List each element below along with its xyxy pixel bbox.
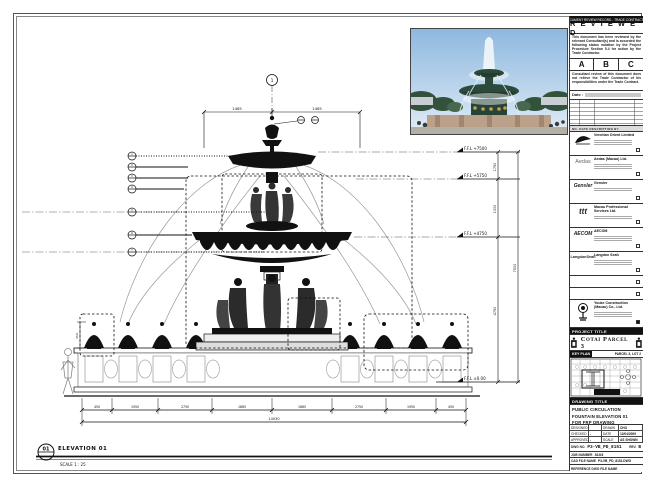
top-dimension	[202, 108, 362, 148]
rev-value: B	[638, 445, 641, 450]
photo-pavement	[411, 127, 567, 134]
consultant-address	[594, 140, 641, 145]
dim-lamp: 450	[75, 333, 79, 339]
reference-dwg-row: REFERENCE DWG FILE NAME	[570, 465, 643, 472]
contractor-checkbox[interactable]	[636, 320, 640, 324]
project-title-panel: Cotai Parcel 3	[570, 335, 643, 351]
photo-basin	[427, 115, 551, 127]
consultant-name: AECOM	[594, 230, 641, 234]
job-number-value: 3103	[594, 452, 603, 457]
consultant-address	[594, 216, 641, 219]
fountain-photo-scene	[411, 29, 567, 134]
job-number-label: JOB NUMBER	[571, 453, 592, 457]
bottom-dimensions: 4501950 27501865 18652750 1950450 14030	[80, 398, 468, 426]
consultant-checkbox[interactable]	[636, 196, 640, 200]
svg-text:14030: 14030	[268, 417, 279, 421]
stamp-date-field[interactable]	[585, 93, 641, 97]
consultant-empty-1	[570, 276, 643, 288]
drawing-title: PUBLIC CIRCULATION FOUNTAIN ELEVATION 01…	[570, 405, 643, 425]
venetian-logo-icon	[572, 134, 594, 153]
mps-logo: ttt	[579, 207, 587, 216]
svg-text:450: 450	[448, 405, 454, 409]
consultant-checkbox[interactable]	[636, 280, 640, 284]
cad-file-label: CAD FILE NAME	[571, 459, 596, 463]
drawing-title-band: DRAWING TITLE	[570, 398, 643, 405]
key-plan-band: KEY PLAN PARCEL 3, LOT 2	[570, 351, 643, 358]
key-plan-map: PARCEL 3 LOT 2	[570, 358, 642, 397]
drawing-title-line-1: PUBLIC CIRCULATION	[572, 407, 641, 412]
stamp-status-options: A B C	[570, 58, 643, 71]
level-1: F.F.L +7500	[464, 146, 487, 151]
svg-text:450: 450	[94, 405, 100, 409]
consultant-mps: ttt Macau Professional Services Ltd.	[570, 204, 643, 228]
stamp-option-b[interactable]: B	[594, 59, 618, 70]
dwg-no-value: P3-VB_PD_8151	[587, 445, 621, 450]
contractor-name: Youke Construction (Macau) Co., Ltd.	[594, 302, 641, 310]
contractor-logo-icon	[572, 302, 594, 325]
dim-top-right: 1465	[312, 106, 322, 111]
svg-text:1865: 1865	[298, 405, 306, 409]
consultant-venetian: Venetian Orient Limited	[570, 132, 643, 156]
contractor-address	[594, 312, 641, 317]
level-3: F.F.L +4750	[464, 231, 487, 236]
consultant-langdonseah: LangdonSeah Langdon Seah	[570, 252, 643, 276]
rev-label: REV.	[629, 445, 636, 449]
scale-figure	[61, 349, 75, 395]
consultant-address	[594, 164, 641, 169]
svg-text:7500: 7500	[513, 264, 517, 273]
consultant-name: Venetian Orient Limited	[594, 134, 641, 138]
contractor-card: Youke Construction (Macau) Co., Ltd.	[570, 300, 643, 328]
svg-text:1000: 1000	[493, 205, 497, 214]
svg-text:1950: 1950	[131, 405, 139, 409]
cad-file-value: P3-VB_PD_8151.DWG	[598, 459, 631, 463]
consultant-name: Macau Professional Services Ltd.	[594, 206, 641, 214]
svg-text:2750: 2750	[355, 405, 363, 409]
consultant-checkbox[interactable]	[636, 172, 640, 176]
dwg-no-label: DWG NO.	[571, 445, 585, 449]
stamp-date-label: Date :	[572, 92, 583, 97]
drawing-sheet: 1 1465 1465	[0, 0, 650, 488]
consultant-name: Aedas (Macau) Ltd.	[594, 158, 641, 162]
consultant-checkbox[interactable]	[636, 292, 640, 296]
svg-text:4750: 4750	[493, 307, 497, 316]
detail-bubbles-top	[274, 117, 319, 125]
dim-top-left: 1465	[232, 106, 242, 111]
stamp-paragraph-1: This document has been reviewed by the r…	[570, 34, 643, 58]
dwg-number-row: DWG NO. P3-VB_PD_8151 REV. B	[570, 443, 643, 452]
key-plan-right-label: PARCEL 3, LOT 2	[615, 352, 643, 356]
elevation-tag: 01	[43, 447, 50, 453]
key-plan: PARCEL 3 LOT 2	[570, 358, 643, 398]
review-stamp: DOCUMENT REVIEW RECORD - TRADE CONTRACTO…	[570, 16, 643, 132]
level-4: F.F.L ±0.00	[464, 376, 486, 381]
consultant-checkbox[interactable]	[636, 220, 640, 224]
drawing-title-line-2: FOUNTAIN ELEVATION 01	[572, 414, 641, 419]
consultant-address	[594, 260, 641, 265]
title-block: DOCUMENT REVIEW RECORD - TRADE CONTRACTO…	[569, 16, 643, 471]
consultant-empty-2	[570, 288, 643, 300]
key-plan-label: KEY PLAN	[570, 351, 592, 357]
basin-parapet	[64, 348, 480, 396]
fountain-photo	[410, 28, 568, 135]
stamp-option-c[interactable]: C	[619, 59, 643, 70]
key-plan-tag: PARCEL 3 LOT 2	[595, 390, 619, 394]
svg-text:2750: 2750	[181, 405, 189, 409]
fountain-structure	[192, 116, 352, 350]
consultant-gensler: Gensler Gensler	[570, 180, 643, 204]
grid-bubble-label: 1	[271, 78, 274, 84]
gensler-logo: Gensler	[574, 183, 593, 189]
svg-text:1950: 1950	[407, 405, 415, 409]
elevation-title: 01 ELEVATION 01 SCALE 1 : 25	[36, 444, 552, 467]
level-2: F.F.L +5750	[464, 173, 487, 178]
project-emblem-right-icon	[635, 337, 643, 349]
stamp-paragraph-2: Consultant review of this document does …	[570, 71, 643, 89]
elevation-scale: SCALE 1 : 25	[60, 462, 86, 467]
project-title-band: PROJECT TITLE	[570, 328, 643, 335]
stamp-option-a[interactable]: A	[570, 59, 594, 70]
revision-table	[570, 99, 643, 126]
aecom-logo: AECOM	[574, 231, 593, 237]
cad-file-row: CAD FILE NAME P3-VB_PD_8151.DWG	[570, 458, 643, 465]
consultant-address	[594, 236, 641, 241]
aedas-logo: Aedas	[575, 159, 591, 165]
datum-lines	[22, 212, 220, 252]
consultant-checkbox[interactable]	[636, 148, 640, 152]
consultant-checkbox[interactable]	[636, 244, 640, 248]
consultant-checkbox[interactable]	[636, 268, 640, 272]
stamp-date-row: Date :	[570, 90, 643, 99]
consultant-aedas: Aedas Aedas (Macau) Ltd.	[570, 156, 643, 180]
langdonseah-logo: LangdonSeah	[570, 255, 595, 259]
project-emblem-left-icon	[570, 337, 578, 349]
svg-text:1865: 1865	[238, 405, 246, 409]
project-name: Cotai Parcel 3	[581, 336, 633, 350]
consultant-name: Gensler	[594, 182, 641, 186]
reference-dwg-label: REFERENCE DWG FILE NAME	[571, 467, 617, 471]
consultant-name: Langdon Seah	[594, 254, 641, 258]
elevation-name: ELEVATION 01	[58, 446, 107, 452]
consultant-address	[594, 188, 641, 191]
svg-text:1750: 1750	[493, 163, 497, 172]
revision-table-header: NO. DATE DESCRIPTION BY	[570, 125, 643, 131]
consultant-aecom: AECOM AECOM	[570, 228, 643, 252]
signoff-table: DESIGNED DRAWN CHO CHECKED - DATE 12/04/…	[570, 425, 643, 443]
stamp-title: R E V I E W E D	[570, 23, 643, 34]
